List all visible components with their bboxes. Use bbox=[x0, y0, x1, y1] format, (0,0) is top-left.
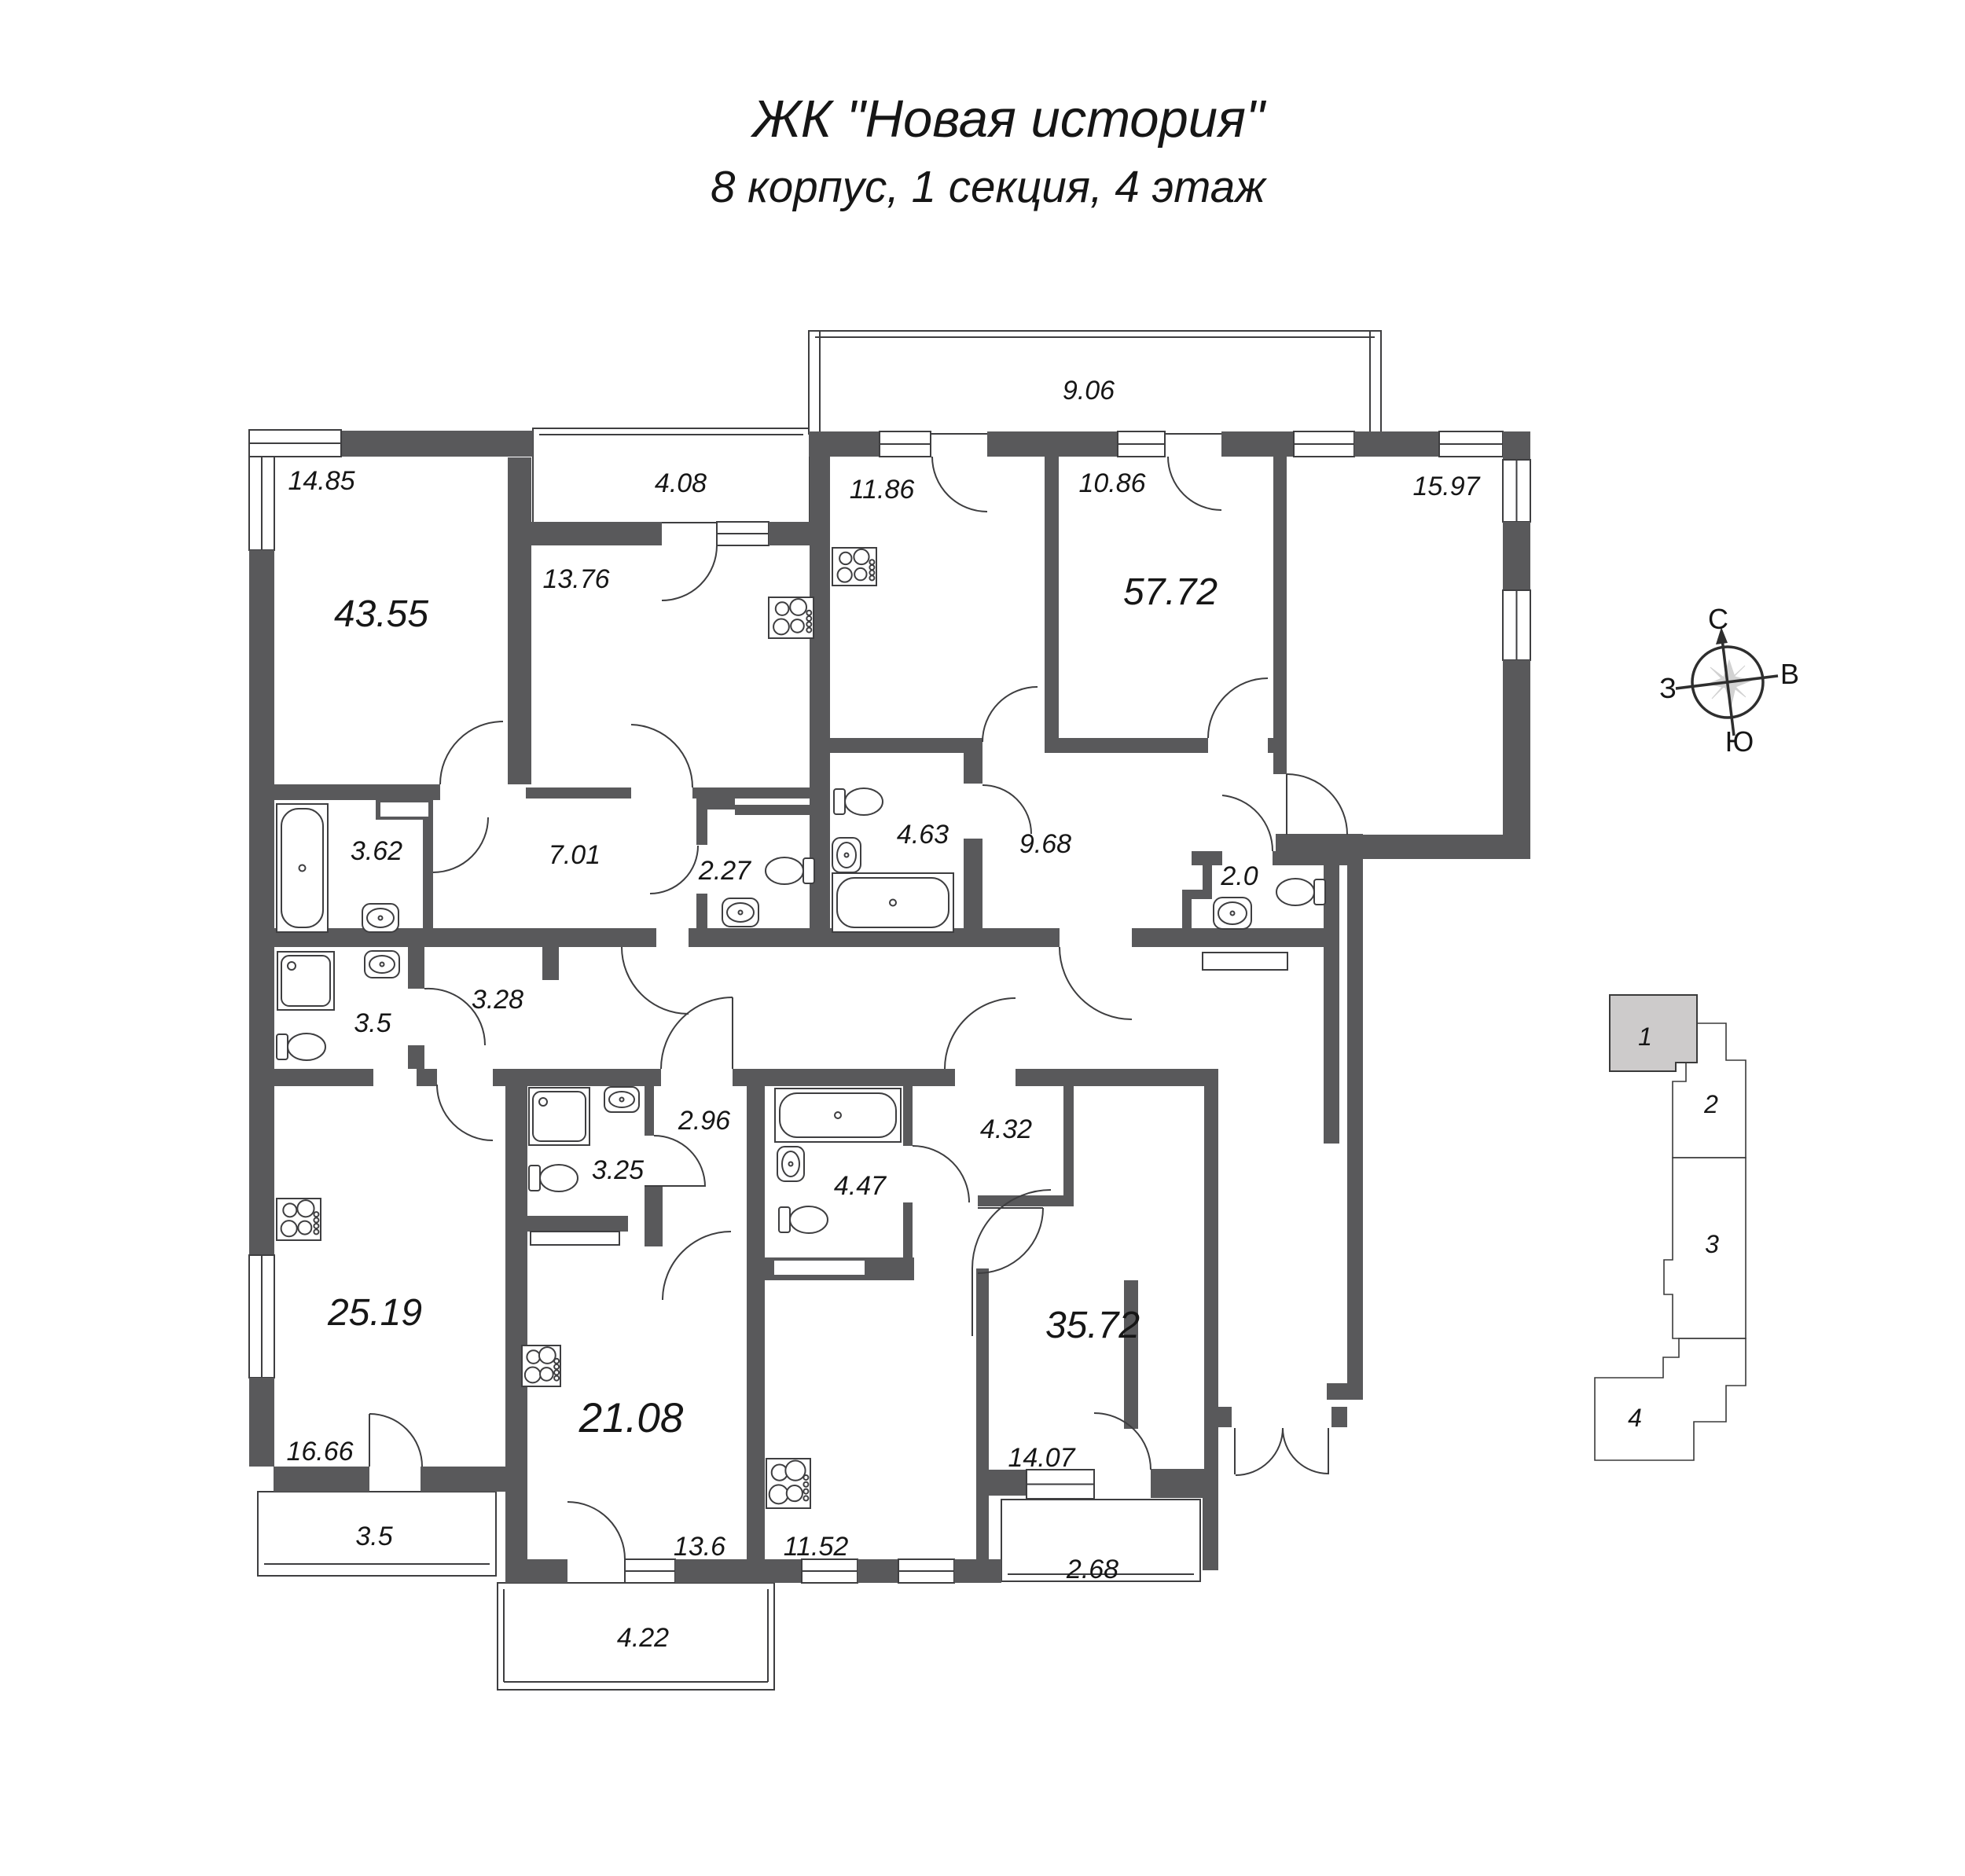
svg-text:13.6: 13.6 bbox=[674, 1532, 725, 1562]
svg-text:43.55: 43.55 bbox=[334, 593, 428, 635]
svg-text:4.63: 4.63 bbox=[897, 820, 949, 850]
svg-text:3.62: 3.62 bbox=[351, 836, 402, 866]
svg-text:2: 2 bbox=[1703, 1090, 1718, 1118]
svg-text:1: 1 bbox=[1638, 1022, 1652, 1051]
svg-text:4: 4 bbox=[1628, 1404, 1642, 1432]
svg-text:З: З bbox=[1659, 672, 1677, 704]
svg-text:10.86: 10.86 bbox=[1078, 468, 1145, 498]
svg-text:3.5: 3.5 bbox=[355, 1522, 392, 1551]
svg-text:7.01: 7.01 bbox=[549, 840, 601, 870]
svg-text:В: В bbox=[1780, 658, 1799, 690]
svg-text:13.76: 13.76 bbox=[542, 564, 609, 594]
svg-text:С: С bbox=[1708, 603, 1728, 635]
svg-text:4.32: 4.32 bbox=[980, 1114, 1032, 1144]
svg-text:35.72: 35.72 bbox=[1045, 1305, 1140, 1346]
svg-text:11.52: 11.52 bbox=[784, 1532, 849, 1562]
svg-text:ЖК "Новая история": ЖК "Новая история" bbox=[750, 90, 1267, 149]
svg-text:4.47: 4.47 bbox=[834, 1171, 887, 1201]
svg-text:3.28: 3.28 bbox=[472, 985, 523, 1015]
svg-text:2.27: 2.27 bbox=[698, 856, 751, 886]
svg-text:14.85: 14.85 bbox=[288, 466, 354, 496]
svg-text:8 корпус, 1 секция, 4 этаж: 8 корпус, 1 секция, 4 этаж bbox=[711, 162, 1267, 211]
svg-text:2.96: 2.96 bbox=[678, 1106, 730, 1136]
svg-text:Ю: Ю bbox=[1725, 725, 1754, 758]
svg-text:15.97: 15.97 bbox=[1412, 472, 1480, 501]
svg-text:9.68: 9.68 bbox=[1019, 829, 1071, 859]
svg-text:4.08: 4.08 bbox=[655, 468, 707, 498]
svg-text:2.68: 2.68 bbox=[1066, 1555, 1118, 1584]
svg-text:11.86: 11.86 bbox=[850, 475, 915, 505]
svg-text:2.0: 2.0 bbox=[1220, 861, 1258, 891]
svg-text:25.19: 25.19 bbox=[327, 1292, 422, 1334]
svg-text:14.07: 14.07 bbox=[1008, 1443, 1075, 1473]
svg-text:3.5: 3.5 bbox=[354, 1008, 391, 1038]
svg-text:4.22: 4.22 bbox=[617, 1623, 669, 1653]
svg-text:16.66: 16.66 bbox=[286, 1437, 353, 1467]
svg-text:9.06: 9.06 bbox=[1063, 376, 1115, 406]
svg-text:57.72: 57.72 bbox=[1123, 571, 1218, 613]
svg-text:3: 3 bbox=[1705, 1230, 1719, 1258]
svg-text:21.08: 21.08 bbox=[578, 1395, 684, 1441]
svg-text:3.25: 3.25 bbox=[592, 1155, 644, 1185]
